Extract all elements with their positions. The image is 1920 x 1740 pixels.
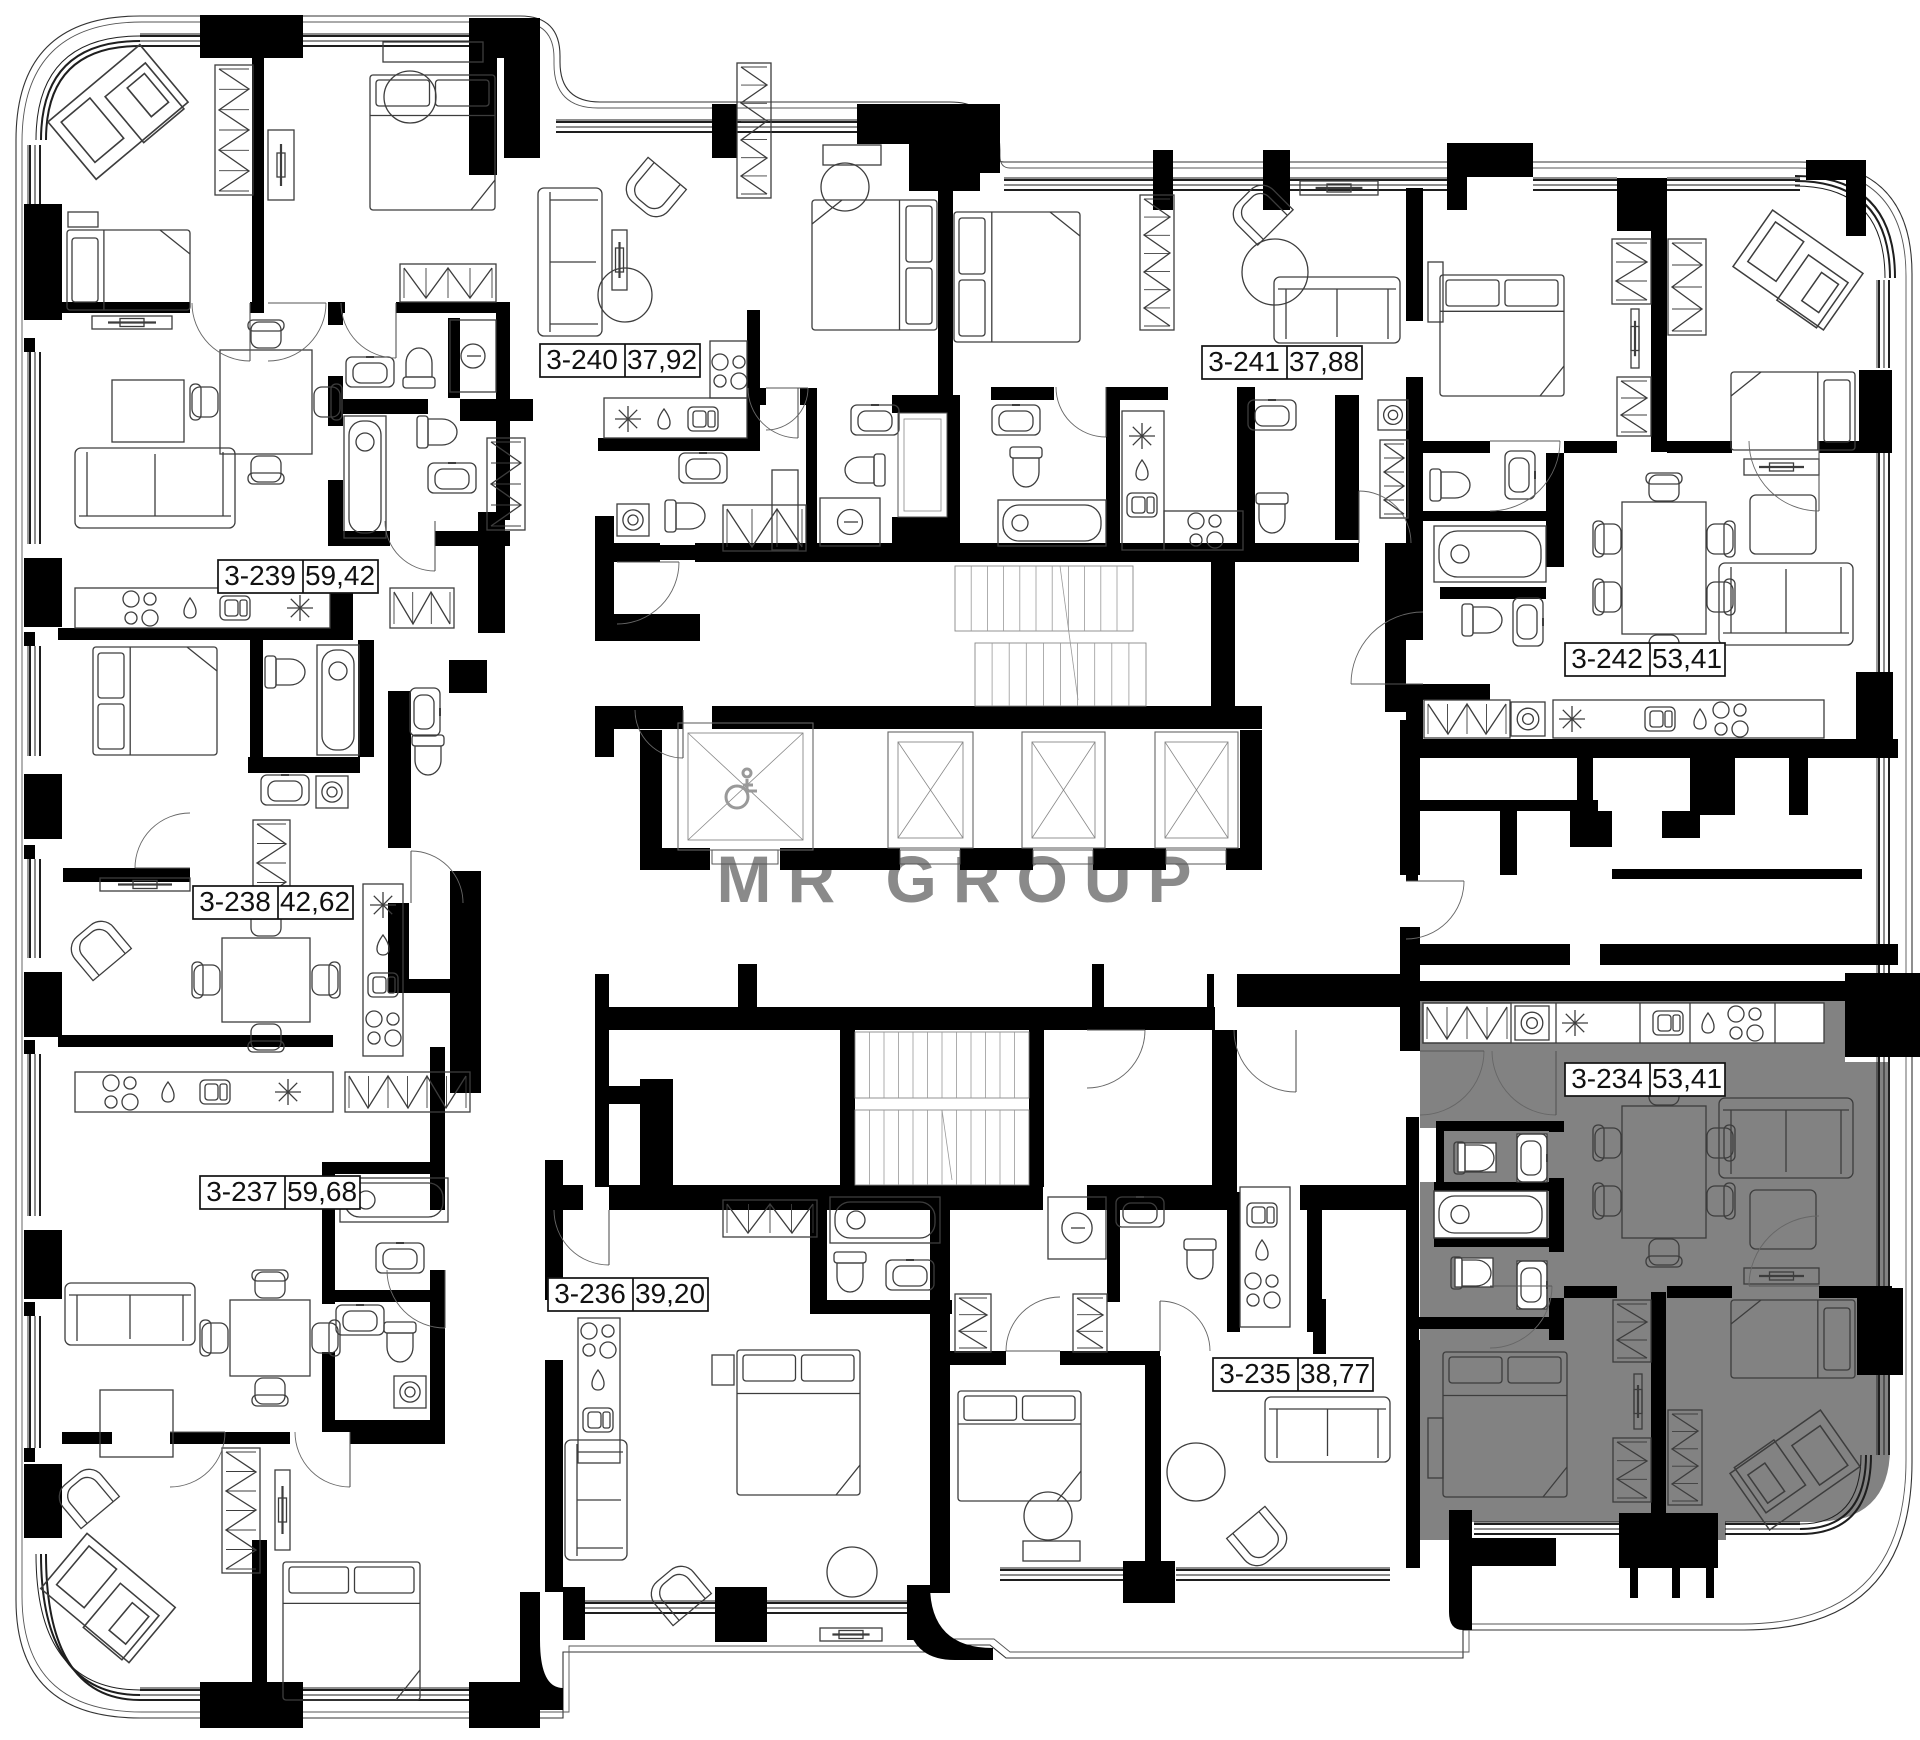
svg-text:3-242: 3-242 — [1571, 643, 1643, 674]
svg-text:42,62: 42,62 — [280, 886, 350, 917]
svg-text:53,41: 53,41 — [1652, 643, 1722, 674]
svg-text:59,42: 59,42 — [305, 560, 375, 591]
svg-text:3-234: 3-234 — [1571, 1063, 1643, 1094]
svg-text:3-240: 3-240 — [546, 344, 618, 375]
svg-text:53,41: 53,41 — [1652, 1063, 1722, 1094]
svg-text:3-238: 3-238 — [199, 886, 271, 917]
svg-text:37,92: 37,92 — [627, 344, 697, 375]
svg-text:3-239: 3-239 — [224, 560, 296, 591]
svg-text:39,20: 39,20 — [635, 1278, 705, 1309]
svg-text:3-235: 3-235 — [1219, 1358, 1291, 1389]
svg-text:3-237: 3-237 — [206, 1176, 278, 1207]
svg-text:59,68: 59,68 — [287, 1176, 357, 1207]
svg-text:3-241: 3-241 — [1208, 346, 1280, 377]
svg-text:3-236: 3-236 — [554, 1278, 626, 1309]
svg-text:37,88: 37,88 — [1289, 346, 1359, 377]
svg-text:38,77: 38,77 — [1300, 1358, 1370, 1389]
